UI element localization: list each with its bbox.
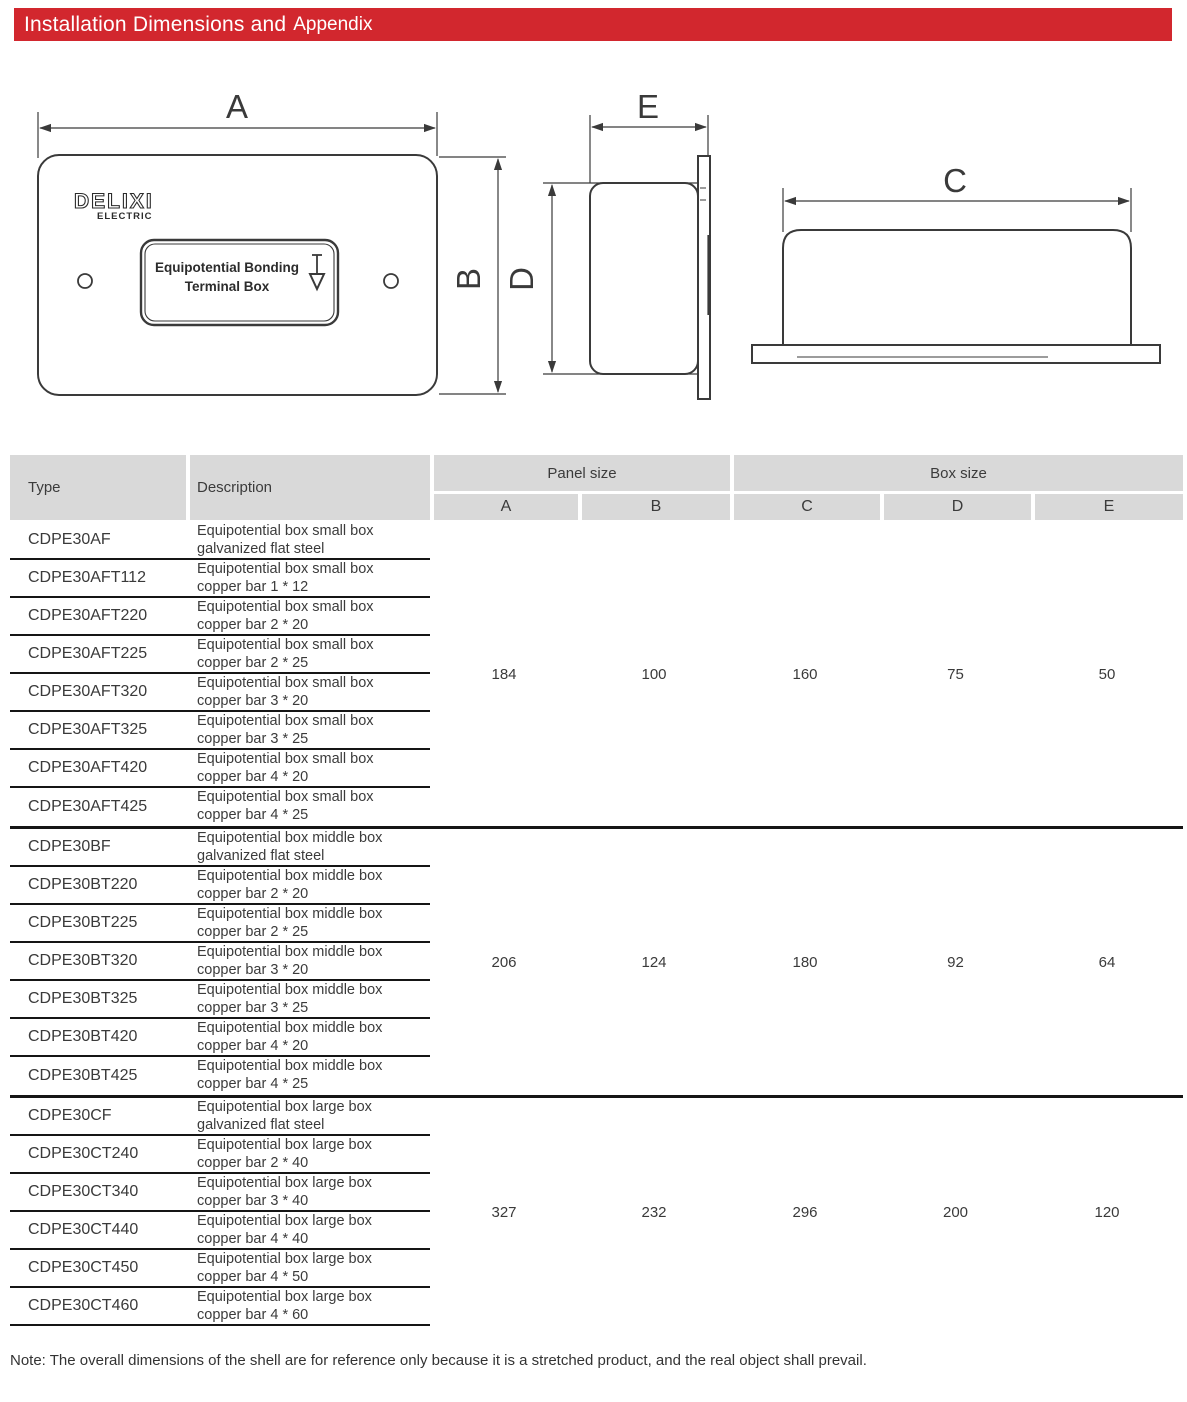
table-row: CDPE30CT240Equipotential box large boxco… xyxy=(10,1136,430,1174)
description-line2: galvanized flat steel xyxy=(197,540,430,558)
description-line2: copper bar 4 * 20 xyxy=(197,1037,430,1055)
table-row: CDPE30AFT325Equipotential box small boxc… xyxy=(10,712,430,750)
description-line2: galvanized flat steel xyxy=(197,1116,430,1134)
dimension-value: 100 xyxy=(578,522,730,826)
description-line2: copper bar 3 * 20 xyxy=(197,961,430,979)
mounting-hole-right xyxy=(384,274,398,288)
description-line2: copper bar 3 * 20 xyxy=(197,692,430,710)
description-cell: Equipotential box middle boxcopper bar 2… xyxy=(190,905,430,941)
description-line1: Equipotential box large box xyxy=(197,1136,430,1154)
description-line2: copper bar 4 * 60 xyxy=(197,1306,430,1324)
description-cell: Equipotential box large boxcopper bar 2 … xyxy=(190,1136,430,1172)
table-row: CDPE30BT320Equipotential box middle boxc… xyxy=(10,943,430,981)
description-line2: copper bar 2 * 25 xyxy=(197,654,430,672)
dim-label-d: D xyxy=(503,267,540,291)
description-cell: Equipotential box small boxcopper bar 3 … xyxy=(190,712,430,748)
description-cell: Equipotential box small boxcopper bar 4 … xyxy=(190,750,430,786)
description-line1: Equipotential box middle box xyxy=(197,943,430,961)
footnote: Note: The overall dimensions of the shel… xyxy=(10,1352,867,1369)
description-cell: Equipotential box large boxcopper bar 4 … xyxy=(190,1250,430,1286)
col-header-c: C xyxy=(734,494,880,520)
description-line1: Equipotential box middle box xyxy=(197,1057,430,1075)
mounting-hole-left xyxy=(78,274,92,288)
dimension-table: Type Description Panel size Box size A B… xyxy=(10,455,1183,1326)
description-line1: Equipotential box small box xyxy=(197,788,430,806)
col-header-b: B xyxy=(582,494,730,520)
dimension-value: 296 xyxy=(730,1098,880,1326)
table-header: Type Description Panel size Box size A B… xyxy=(10,455,1183,520)
description-cell: Equipotential box large boxgalvanized fl… xyxy=(190,1098,430,1134)
type-cell: CDPE30AFT425 xyxy=(10,788,190,826)
description-cell: Equipotential box middle boxcopper bar 3… xyxy=(190,943,430,979)
description-line2: copper bar 2 * 40 xyxy=(197,1154,430,1172)
dimension-drawings: A B DELIXI ELECTRIC Equipotential Bondin… xyxy=(0,60,1187,410)
dimension-value: 232 xyxy=(578,1098,730,1326)
col-header-e: E xyxy=(1035,494,1183,520)
type-cell: CDPE30BT325 xyxy=(10,981,190,1017)
description-line1: Equipotential box large box xyxy=(197,1250,430,1268)
section-title-appendix: Appendix xyxy=(293,14,372,36)
description-line2: copper bar 3 * 25 xyxy=(197,730,430,748)
description-cell: Equipotential box middle boxcopper bar 4… xyxy=(190,1019,430,1055)
table-row: CDPE30BFEquipotential box middle boxgalv… xyxy=(10,829,430,867)
type-cell: CDPE30AFT225 xyxy=(10,636,190,672)
dimension-value: 180 xyxy=(730,829,880,1095)
description-line1: Equipotential box small box xyxy=(197,674,430,692)
type-cell: CDPE30AFT325 xyxy=(10,712,190,748)
group-dimension-values: 327232296200120 xyxy=(430,1098,1183,1326)
type-cell: CDPE30CF xyxy=(10,1098,190,1134)
box-body-side xyxy=(590,183,698,374)
type-cell: CDPE30CT460 xyxy=(10,1288,190,1324)
col-header-panel-size: Panel size xyxy=(434,455,730,491)
table-body: CDPE30AFEquipotential box small boxgalva… xyxy=(10,522,1183,1326)
col-header-d: D xyxy=(884,494,1031,520)
table-row: CDPE30BT220Equipotential box middle boxc… xyxy=(10,867,430,905)
description-line2: copper bar 4 * 40 xyxy=(197,1230,430,1248)
group-dimension-values: 2061241809264 xyxy=(430,829,1183,1095)
group-dimension-values: 1841001607550 xyxy=(430,522,1183,826)
description-line1: Equipotential box large box xyxy=(197,1098,430,1116)
description-line2: galvanized flat steel xyxy=(197,847,430,865)
dimension-value: 184 xyxy=(430,522,578,826)
table-row: CDPE30AFT425Equipotential box small boxc… xyxy=(10,788,430,826)
type-cell: CDPE30BT425 xyxy=(10,1057,190,1095)
description-line1: Equipotential box small box xyxy=(197,560,430,578)
type-cell: CDPE30AFT220 xyxy=(10,598,190,634)
table-row: CDPE30CT450Equipotential box large boxco… xyxy=(10,1250,430,1288)
page: Installation Dimensions and Appendix xyxy=(0,0,1187,1402)
table-row: CDPE30AFEquipotential box small boxgalva… xyxy=(10,522,430,560)
description-line1: Equipotential box small box xyxy=(197,750,430,768)
dimension-value: 64 xyxy=(1031,829,1183,1095)
box-body-bottom xyxy=(783,230,1131,346)
table-group-rows: CDPE30CFEquipotential box large boxgalva… xyxy=(10,1098,430,1326)
dimension-value: 160 xyxy=(730,522,880,826)
description-cell: Equipotential box middle boxgalvanized f… xyxy=(190,829,430,865)
table-row: CDPE30BT420Equipotential box middle boxc… xyxy=(10,1019,430,1057)
description-line2: copper bar 4 * 50 xyxy=(197,1268,430,1286)
description-line2: copper bar 1 * 12 xyxy=(197,578,430,596)
base-plate-bottom xyxy=(752,345,1160,363)
description-line1: Equipotential box middle box xyxy=(197,981,430,999)
description-line1: Equipotential box small box xyxy=(197,598,430,616)
description-cell: Equipotential box small boxcopper bar 2 … xyxy=(190,598,430,634)
type-cell: CDPE30AFT320 xyxy=(10,674,190,710)
table-row: CDPE30CT440Equipotential box large boxco… xyxy=(10,1212,430,1250)
bottom-view xyxy=(752,188,1160,363)
description-line2: copper bar 4 * 25 xyxy=(197,806,430,824)
description-line2: copper bar 2 * 20 xyxy=(197,885,430,903)
front-view xyxy=(38,112,506,395)
type-cell: CDPE30CT340 xyxy=(10,1174,190,1210)
table-row: CDPE30AFT220Equipotential box small boxc… xyxy=(10,598,430,636)
description-cell: Equipotential box large boxcopper bar 3 … xyxy=(190,1174,430,1210)
table-row: CDPE30AFT420Equipotential box small boxc… xyxy=(10,750,430,788)
description-line1: Equipotential box middle box xyxy=(197,829,430,847)
description-line1: Equipotential box middle box xyxy=(197,867,430,885)
table-group: CDPE30BFEquipotential box middle boxgalv… xyxy=(10,826,1183,1095)
type-cell: CDPE30CT240 xyxy=(10,1136,190,1172)
dim-label-a: A xyxy=(226,88,248,125)
table-group: CDPE30CFEquipotential box large boxgalva… xyxy=(10,1095,1183,1326)
delixi-logo-electric: ELECTRIC xyxy=(97,211,153,222)
description-line2: copper bar 2 * 25 xyxy=(197,923,430,941)
type-cell: CDPE30BT220 xyxy=(10,867,190,903)
description-cell: Equipotential box small boxcopper bar 2 … xyxy=(190,636,430,672)
description-line1: Equipotential box small box xyxy=(197,712,430,730)
table-group-rows: CDPE30BFEquipotential box middle boxgalv… xyxy=(10,829,430,1095)
description-cell: Equipotential box small boxcopper bar 4 … xyxy=(190,788,430,826)
dimension-value: 50 xyxy=(1031,522,1183,826)
type-cell: CDPE30BT225 xyxy=(10,905,190,941)
dimension-value: 327 xyxy=(430,1098,578,1326)
type-cell: CDPE30BF xyxy=(10,829,190,865)
type-cell: CDPE30CT450 xyxy=(10,1250,190,1286)
table-group-rows: CDPE30AFEquipotential box small boxgalva… xyxy=(10,522,430,826)
terminal-label-line1: Equipotential Bonding xyxy=(155,260,299,275)
type-cell: CDPE30AFT420 xyxy=(10,750,190,786)
description-line2: copper bar 4 * 20 xyxy=(197,768,430,786)
description-cell: Equipotential box small boxcopper bar 1 … xyxy=(190,560,430,596)
delixi-logo: DELIXI xyxy=(74,190,154,213)
section-title: Installation Dimensions and xyxy=(24,13,286,37)
table-row: CDPE30CT340Equipotential box large boxco… xyxy=(10,1174,430,1212)
table-row: CDPE30CFEquipotential box large boxgalva… xyxy=(10,1098,430,1136)
table-row: CDPE30BT325Equipotential box middle boxc… xyxy=(10,981,430,1019)
table-row: CDPE30BT425Equipotential box middle boxc… xyxy=(10,1057,430,1095)
dimension-value: 92 xyxy=(880,829,1031,1095)
table-row: CDPE30AFT320Equipotential box small boxc… xyxy=(10,674,430,712)
description-line2: copper bar 3 * 25 xyxy=(197,999,430,1017)
description-cell: Equipotential box large boxcopper bar 4 … xyxy=(190,1212,430,1248)
terminal-label-line2: Terminal Box xyxy=(185,279,270,294)
description-line2: copper bar 2 * 20 xyxy=(197,616,430,634)
dim-label-c: C xyxy=(943,162,967,199)
description-line1: Equipotential box middle box xyxy=(197,905,430,923)
dimension-value: 120 xyxy=(1031,1098,1183,1326)
col-header-description: Description xyxy=(190,455,430,520)
type-cell: CDPE30BT420 xyxy=(10,1019,190,1055)
table-row: CDPE30AFT225Equipotential box small boxc… xyxy=(10,636,430,674)
section-header: Installation Dimensions and Appendix xyxy=(14,8,1172,41)
description-line1: Equipotential box small box xyxy=(197,522,430,540)
type-cell: CDPE30AFT112 xyxy=(10,560,190,596)
description-line1: Equipotential box large box xyxy=(197,1174,430,1192)
table-group: CDPE30AFEquipotential box small boxgalva… xyxy=(10,522,1183,826)
dimension-value: 200 xyxy=(880,1098,1031,1326)
col-header-type: Type xyxy=(10,455,186,520)
description-cell: Equipotential box middle boxcopper bar 3… xyxy=(190,981,430,1017)
description-cell: Equipotential box large boxcopper bar 4 … xyxy=(190,1288,430,1324)
type-cell: CDPE30BT320 xyxy=(10,943,190,979)
description-line2: copper bar 3 * 40 xyxy=(197,1192,430,1210)
dimension-value: 206 xyxy=(430,829,578,1095)
table-row: CDPE30CT460Equipotential box large boxco… xyxy=(10,1288,430,1326)
description-line1: Equipotential box middle box xyxy=(197,1019,430,1037)
table-row: CDPE30AFT112Equipotential box small boxc… xyxy=(10,560,430,598)
description-line2: copper bar 4 * 25 xyxy=(197,1075,430,1093)
description-line1: Equipotential box large box xyxy=(197,1212,430,1230)
description-line1: Equipotential box large box xyxy=(197,1288,430,1306)
dim-label-b: B xyxy=(450,268,487,290)
description-cell: Equipotential box small boxcopper bar 3 … xyxy=(190,674,430,710)
description-cell: Equipotential box middle boxcopper bar 4… xyxy=(190,1057,430,1095)
dim-label-e: E xyxy=(637,88,659,125)
table-row: CDPE30BT225Equipotential box middle boxc… xyxy=(10,905,430,943)
dimension-value: 75 xyxy=(880,522,1031,826)
side-view xyxy=(543,115,710,399)
description-cell: Equipotential box middle boxcopper bar 2… xyxy=(190,867,430,903)
type-cell: CDPE30CT440 xyxy=(10,1212,190,1248)
col-header-a: A xyxy=(434,494,578,520)
ground-symbol xyxy=(310,255,324,289)
description-line1: Equipotential box small box xyxy=(197,636,430,654)
type-cell: CDPE30AF xyxy=(10,522,190,558)
dimension-value: 124 xyxy=(578,829,730,1095)
description-cell: Equipotential box small boxgalvanized fl… xyxy=(190,522,430,558)
col-header-box-size: Box size xyxy=(734,455,1183,491)
